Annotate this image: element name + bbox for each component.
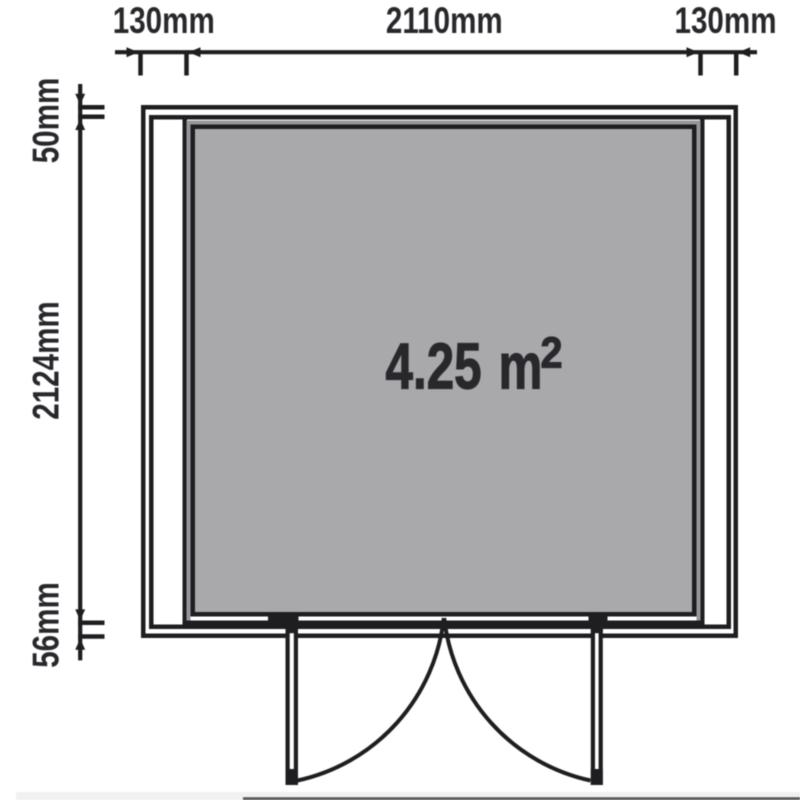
svg-text:56mm: 56mm: [26, 582, 67, 668]
svg-text:4.25: 4.25: [386, 331, 482, 403]
svg-text:2110mm: 2110mm: [386, 1, 503, 42]
svg-text:130mm: 130mm: [113, 1, 215, 42]
svg-text:2124mm: 2124mm: [26, 301, 67, 419]
svg-text:m: m: [499, 331, 543, 403]
svg-text:130mm: 130mm: [674, 1, 776, 42]
svg-text:50mm: 50mm: [26, 78, 67, 164]
svg-text:2: 2: [541, 328, 563, 377]
